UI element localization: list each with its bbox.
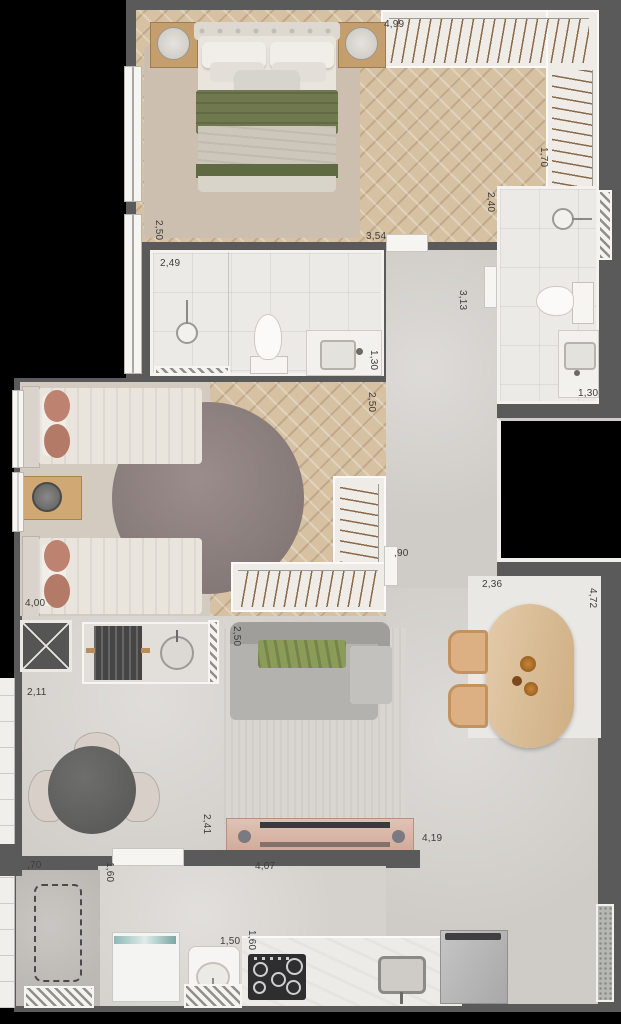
dimension-label: 1,70	[538, 147, 549, 167]
dimension-label: 2,50	[153, 220, 164, 240]
dimension-label: 2,41	[201, 814, 212, 834]
dimension-label: ,90	[394, 548, 409, 559]
dimension-label: 1,50	[220, 936, 240, 947]
dimension-label: 4,00	[25, 598, 45, 609]
dimension-label: 2,40	[485, 192, 496, 212]
dimension-label: 1,30	[368, 350, 379, 370]
dimension-label: ,70	[27, 860, 42, 871]
dimension-label: 3,54	[366, 231, 386, 242]
dimension-label: 2,50	[366, 392, 377, 412]
dimension-label: 1,60	[246, 930, 257, 950]
dimension-label: 3,13	[457, 290, 468, 310]
dimension-label: 2,49	[160, 258, 180, 269]
dimension-label: 4,19	[422, 833, 442, 844]
dimension-label: 4,72	[587, 588, 598, 608]
dimension-label: 2,50	[231, 626, 242, 646]
dimension-label: 2,11	[27, 687, 47, 698]
dimension-layer: 4,991,702,402,503,542,493,131,301,302,50…	[0, 0, 621, 1024]
dimension-label: 4,07	[255, 861, 275, 872]
dimension-label: 1,30	[578, 388, 598, 399]
dimension-label: 1,60	[104, 862, 115, 882]
floor-plan: 4,991,702,402,503,542,493,131,301,302,50…	[0, 0, 621, 1024]
dimension-label: 4,99	[384, 19, 404, 30]
dimension-label: 2,36	[482, 579, 502, 590]
